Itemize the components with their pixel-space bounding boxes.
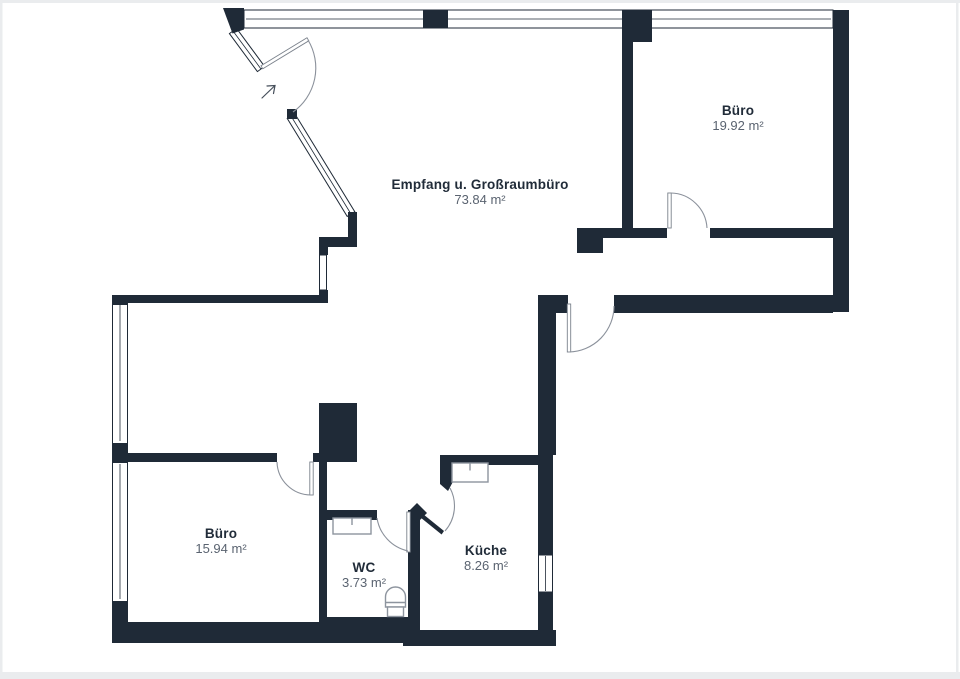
wall-partition-buero-top: [622, 28, 633, 238]
buero-top-door-swing: [671, 193, 707, 228]
wall-kitchen-right-upper: [538, 455, 553, 555]
wall-kitchen-bottom: [403, 630, 556, 646]
room-area: 19.92 m²: [712, 118, 763, 133]
wall-wc-left: [319, 462, 327, 622]
wc-door: [377, 512, 410, 552]
room-name: WC: [342, 560, 386, 575]
kitchen-door-swing: [445, 488, 454, 531]
room-label-buero-top: Büro 19.92 m²: [712, 103, 763, 133]
wc-door-leaf: [407, 512, 410, 552]
room-name: Küche: [464, 543, 508, 558]
toilet-icon: [386, 587, 406, 617]
corridor-exit-door-leaf: [567, 304, 570, 352]
room-name: Empfang u. Großraumbüro: [391, 177, 568, 192]
buero-top-door: [668, 193, 707, 228]
room-label-buero-bottom: Büro 15.94 m²: [195, 526, 246, 556]
page-edge-top: [0, 0, 960, 3]
room-area: 73.84 m²: [391, 192, 568, 207]
entrance-arrow-icon: [262, 86, 275, 99]
entrance-door-leaf: [261, 38, 309, 69]
wall-lower-right-vertical: [538, 295, 556, 455]
floorplan-svg: [0, 0, 960, 679]
room-name: Büro: [712, 103, 763, 118]
buero-bottom-door-leaf: [310, 462, 313, 495]
wall-right: [833, 10, 849, 312]
wall-bottom-main: [112, 622, 418, 643]
room-name: Büro: [195, 526, 246, 541]
page-edges: [0, 0, 960, 679]
room-area: 8.26 m²: [464, 558, 508, 573]
buero-bottom-door-swing: [277, 462, 311, 495]
wall-lower-top: [112, 295, 327, 303]
room-label-empfang: Empfang u. Großraumbüro 73.84 m²: [391, 177, 568, 207]
wall-middle: [112, 453, 277, 462]
wall-corridor-bottom: [614, 295, 833, 313]
room-label-kueche: Küche 8.26 m²: [464, 543, 508, 573]
wc-sink-icon: [333, 518, 371, 534]
entrance-door-swing: [293, 40, 316, 112]
floorplan-page: Büro 19.92 m² Empfang u. Großraumbüro 73…: [0, 0, 960, 679]
window-step: [320, 255, 327, 290]
kitchen-sink-icon: [452, 463, 488, 482]
page-edge-bottom: [0, 672, 960, 679]
entrance-door: [261, 38, 316, 112]
wall-pillar-block: [319, 403, 357, 462]
room-label-wc: WC 3.73 m²: [342, 560, 386, 590]
room-area: 15.94 m²: [195, 541, 246, 556]
wall-top-left-wedge: [223, 8, 244, 34]
page-edge-right: [956, 0, 959, 679]
buero-top-door-leaf: [668, 193, 671, 228]
wall-step: [319, 237, 357, 247]
wc-door-swing: [377, 518, 408, 551]
wall-top-pier-1: [423, 10, 448, 28]
corridor-exit-door-swing: [569, 306, 614, 352]
buero-bottom-door: [277, 462, 313, 495]
room-area: 3.73 m²: [342, 575, 386, 590]
page-edge-left: [0, 0, 3, 679]
corridor-exit-door: [567, 304, 614, 352]
